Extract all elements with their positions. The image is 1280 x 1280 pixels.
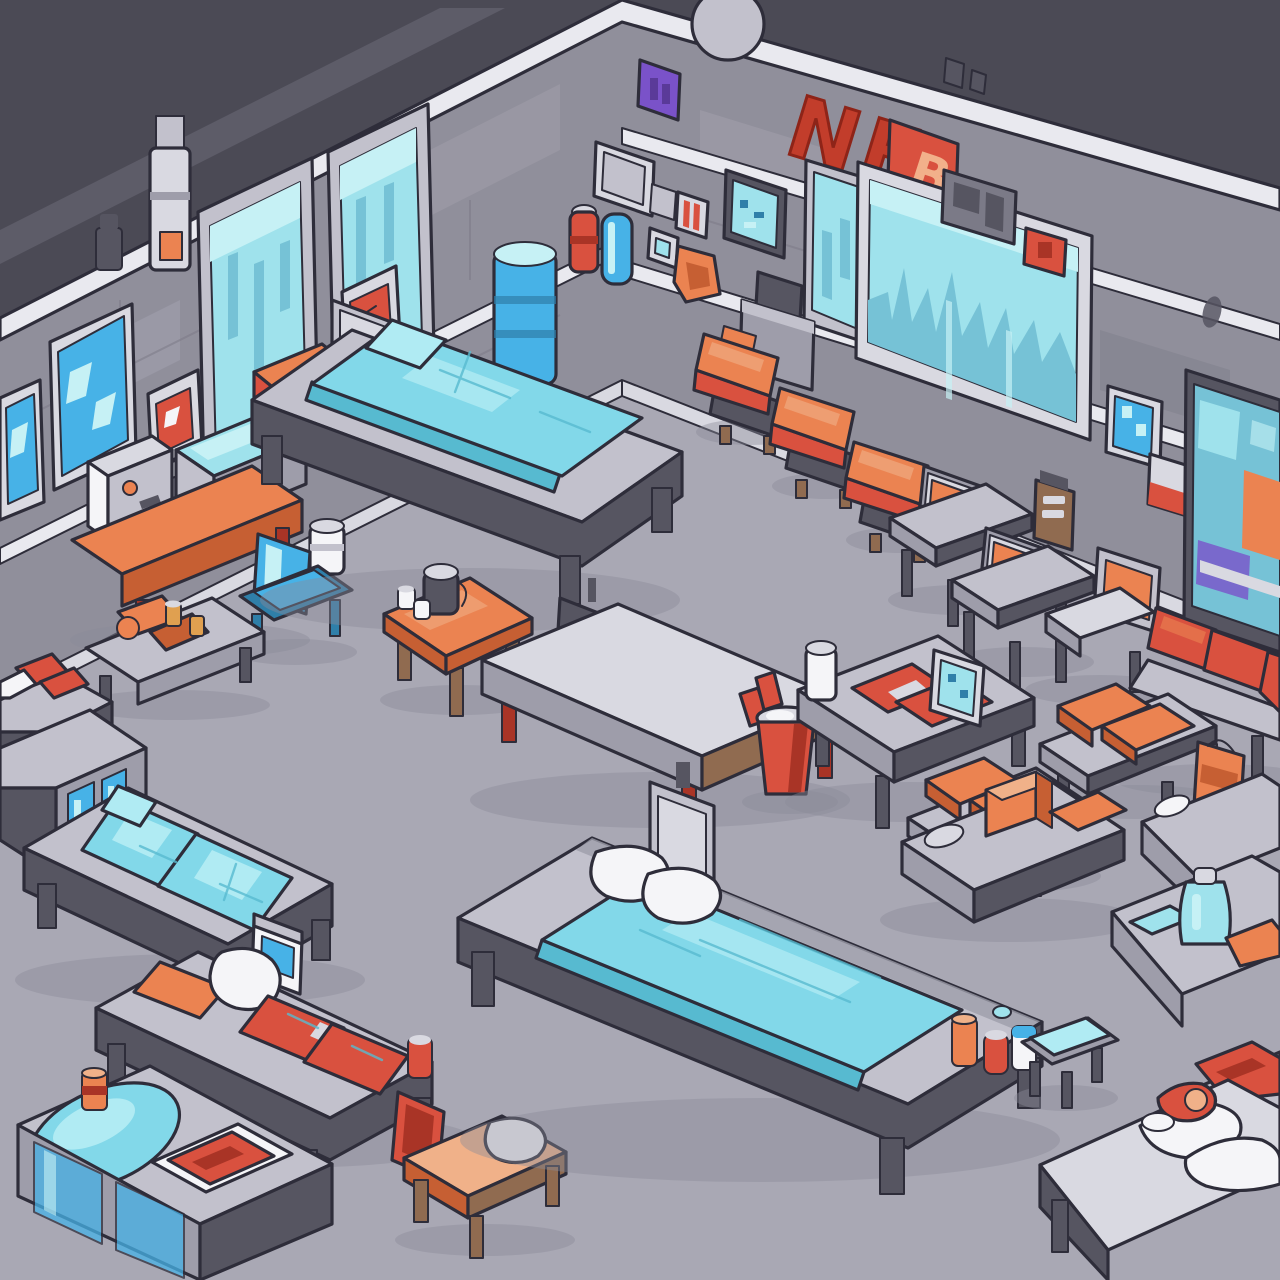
supply-bag-orange xyxy=(674,246,720,302)
ceiling-dome-lamp xyxy=(692,0,764,60)
ward-scene: NE B xyxy=(0,0,1280,1280)
fire-extinguisher[interactable] xyxy=(570,205,598,272)
towel-roll-blue xyxy=(602,214,632,284)
water-tank-blue xyxy=(494,242,556,384)
register-machine[interactable] xyxy=(1034,470,1074,550)
red-stripe-frame xyxy=(676,192,708,238)
wall-mural xyxy=(1184,370,1280,652)
picture-frame-left-2 xyxy=(0,380,44,520)
